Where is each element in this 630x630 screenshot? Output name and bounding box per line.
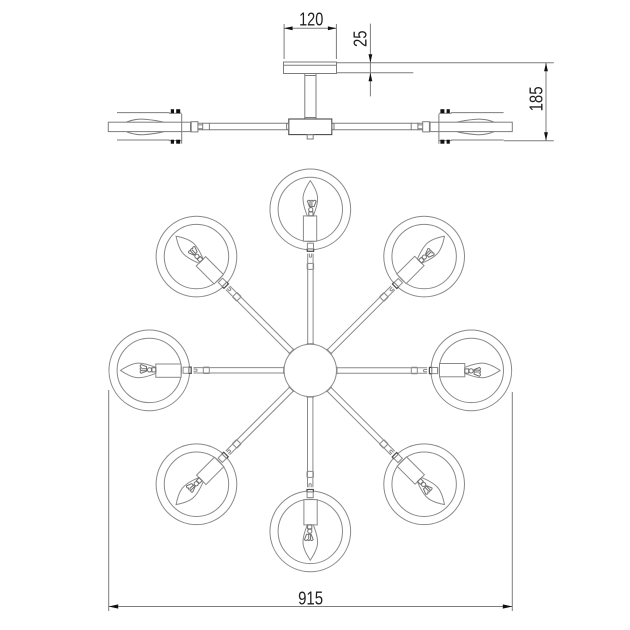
- svg-text:25: 25: [351, 31, 371, 48]
- svg-text:915: 915: [298, 588, 323, 608]
- svg-text:120: 120: [299, 9, 323, 29]
- svg-text:185: 185: [527, 86, 547, 111]
